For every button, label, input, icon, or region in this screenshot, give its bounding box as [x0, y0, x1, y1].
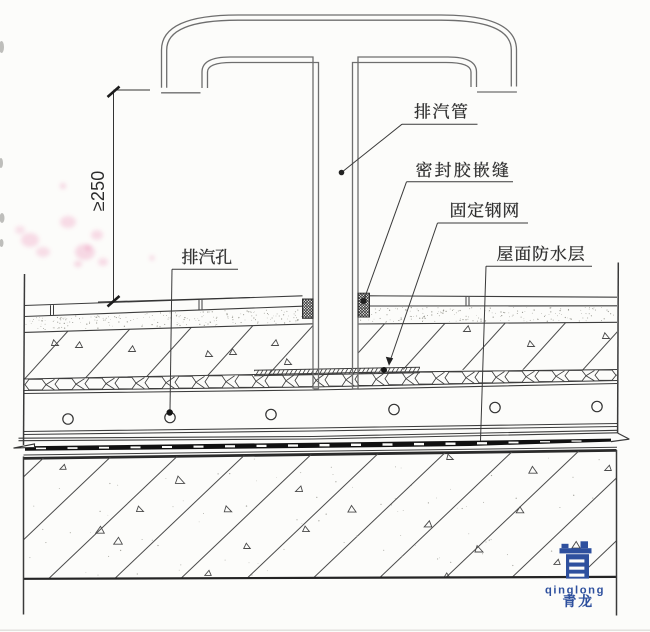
- svg-text:qinglong: qinglong: [545, 584, 605, 596]
- svg-text:≥250: ≥250: [88, 170, 108, 211]
